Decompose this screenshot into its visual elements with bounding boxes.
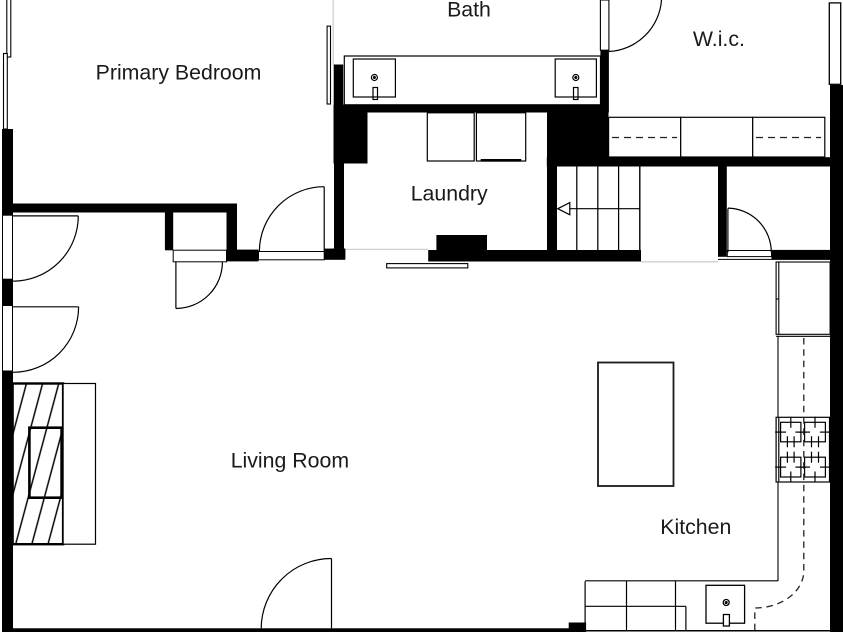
svg-text:Laundry: Laundry [411,181,488,205]
svg-text:Primary Bedroom: Primary Bedroom [96,60,262,84]
svg-text:Bath: Bath [447,0,491,22]
svg-text:Living Room: Living Room [231,448,349,472]
svg-text:W.i.c.: W.i.c. [693,27,745,51]
svg-text:Kitchen: Kitchen [660,515,731,539]
